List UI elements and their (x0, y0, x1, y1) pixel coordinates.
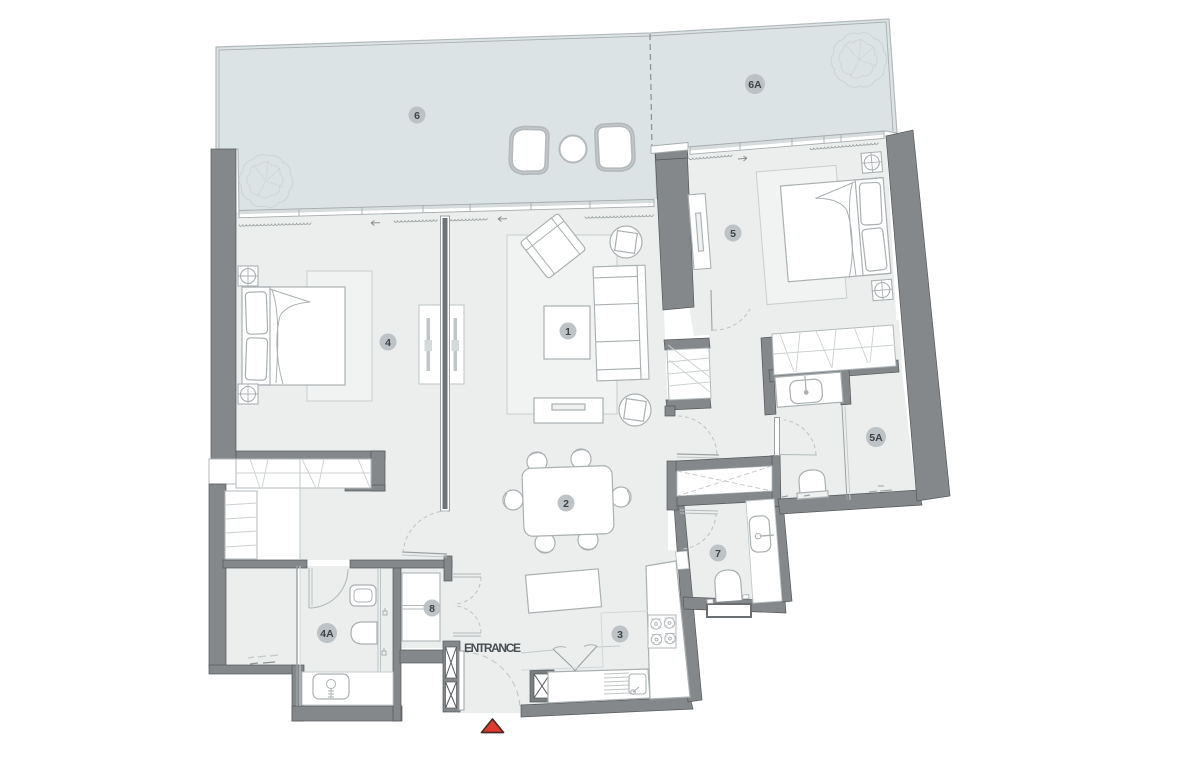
svg-text:6: 6 (414, 110, 420, 122)
svg-text:1: 1 (565, 326, 571, 338)
svg-text:8: 8 (429, 603, 435, 615)
svg-text:2: 2 (563, 498, 569, 510)
svg-text:5: 5 (730, 228, 736, 240)
svg-text:7: 7 (715, 548, 721, 560)
svg-text:4A: 4A (320, 628, 334, 640)
svg-text:5A: 5A (869, 432, 883, 444)
svg-text:4: 4 (385, 337, 391, 349)
svg-text:3: 3 (617, 629, 623, 641)
svg-text:ENTRANCE: ENTRANCE (464, 641, 521, 655)
svg-text:6A: 6A (748, 79, 762, 91)
